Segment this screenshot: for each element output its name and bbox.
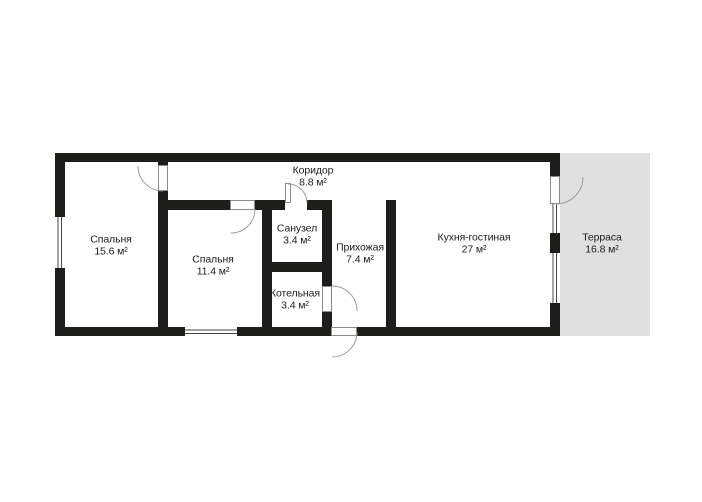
wall-right <box>550 153 560 336</box>
room-area: 3.4 м² <box>270 300 320 312</box>
room-label-corridor: Коридор 8.8 м² <box>293 165 334 190</box>
room-area: 3.4 м² <box>277 235 317 247</box>
room-label-hallway: Прихожая 7.4 м² <box>336 242 384 267</box>
room-label-bedroom-1: Спальня 15.6 м² <box>90 234 132 259</box>
room-label-terrace: Терраса 16.8 м² <box>582 232 622 257</box>
room-name: Кухня-гостиная <box>438 232 511 244</box>
room-area: 16.8 м² <box>582 244 622 256</box>
wall-bathroom-east <box>322 200 332 327</box>
room-name: Спальня <box>192 254 234 266</box>
room-name: Спальня <box>90 234 132 246</box>
room-area: 7.4 м² <box>336 254 384 266</box>
room-label-bedroom-2: Спальня 11.4 м² <box>192 254 234 279</box>
room-label-kitchen: Кухня-гостиная 27 м² <box>438 232 511 257</box>
wall-top <box>55 153 560 162</box>
room-label-bathroom: Санузел 3.4 м² <box>277 223 317 248</box>
room-name: Санузел <box>277 223 317 235</box>
room-name: Коридор <box>293 165 334 177</box>
room-name: Котельная <box>270 288 320 300</box>
wall-bottom <box>55 327 560 336</box>
wall-kitchen-west <box>386 200 396 327</box>
room-name: Терраса <box>582 232 622 244</box>
room-label-boiler: Котельная 3.4 м² <box>270 288 320 313</box>
wall-bedroom1-east <box>158 162 168 327</box>
floor-plan: Спальня 15.6 м² Спальня 11.4 м² Санузел … <box>0 0 702 502</box>
room-area: 8.8 м² <box>293 177 334 189</box>
wall-corridor-south <box>168 200 332 210</box>
wall-left <box>55 153 65 336</box>
room-area: 11.4 м² <box>192 266 234 278</box>
room-area: 27 м² <box>438 244 511 256</box>
room-name: Прихожая <box>336 242 384 254</box>
room-area: 15.6 м² <box>90 246 132 258</box>
